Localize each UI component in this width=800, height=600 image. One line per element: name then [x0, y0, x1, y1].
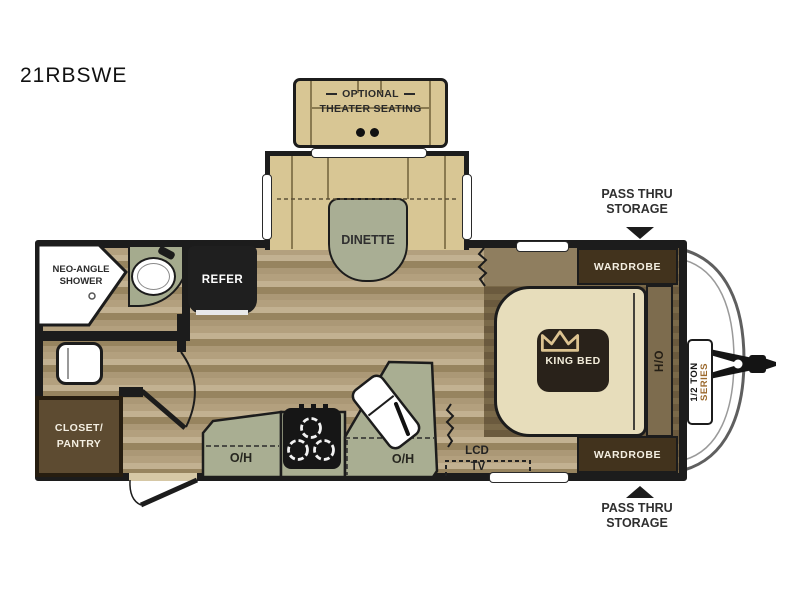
model-title: 21RBSWE: [20, 64, 127, 88]
kitchen-sink: [350, 373, 423, 452]
bathroom-door: [142, 391, 185, 428]
oh-left-label: O/H: [221, 451, 261, 465]
window: [462, 174, 472, 240]
dinette-label: DINETTE: [333, 233, 403, 247]
pass-thru-top-line1: PASS THRU: [587, 187, 687, 202]
dash-decor: [326, 93, 337, 95]
shower-label-line2: SHOWER: [44, 276, 118, 288]
burner-icon: [302, 419, 321, 438]
arrow-up-icon: [626, 486, 654, 498]
shower-label: NEO-ANGLE SHOWER: [44, 264, 118, 288]
lcd-label: LCD: [457, 445, 497, 458]
window: [311, 148, 427, 158]
oh-right-label: O/H: [383, 452, 423, 466]
pass-thru-bottom-line2: STORAGE: [587, 516, 687, 531]
tv-label: TV: [458, 461, 498, 474]
slide-edge-zigzag: [479, 248, 486, 286]
floorplan-canvas: 21RBSWE WARDROBE WARDROBE H/O KI: [0, 0, 800, 600]
burner-icon: [315, 441, 334, 460]
entry-door: [141, 480, 197, 505]
pass-thru-storage-bottom-label: PASS THRU STORAGE: [587, 501, 687, 531]
badge-line2: SERIES: [700, 363, 710, 401]
theater-seating-label: OPTIONAL THEATER SEATING: [300, 88, 441, 115]
window: [262, 174, 272, 240]
curtain-zigzag: [447, 404, 453, 447]
theater-label-line2: THEATER SEATING: [300, 103, 441, 115]
window: [516, 241, 569, 252]
pass-thru-top-line2: STORAGE: [587, 202, 687, 217]
arrow-down-icon: [626, 227, 654, 239]
window: [489, 472, 569, 483]
pass-thru-storage-top-label: PASS THRU STORAGE: [587, 187, 687, 217]
shower-label-line1: NEO-ANGLE: [44, 264, 118, 276]
bathroom-door-swing-arc: [181, 352, 195, 427]
dash-decor: [404, 93, 415, 95]
theater-label-line1: OPTIONAL: [342, 88, 399, 100]
half-ton-series-badge: 1/2 TON SERIES: [687, 339, 713, 425]
burner-icon: [289, 441, 308, 460]
entry-door-swing-arc: [130, 480, 141, 505]
pass-thru-bottom-line1: PASS THRU: [587, 501, 687, 516]
